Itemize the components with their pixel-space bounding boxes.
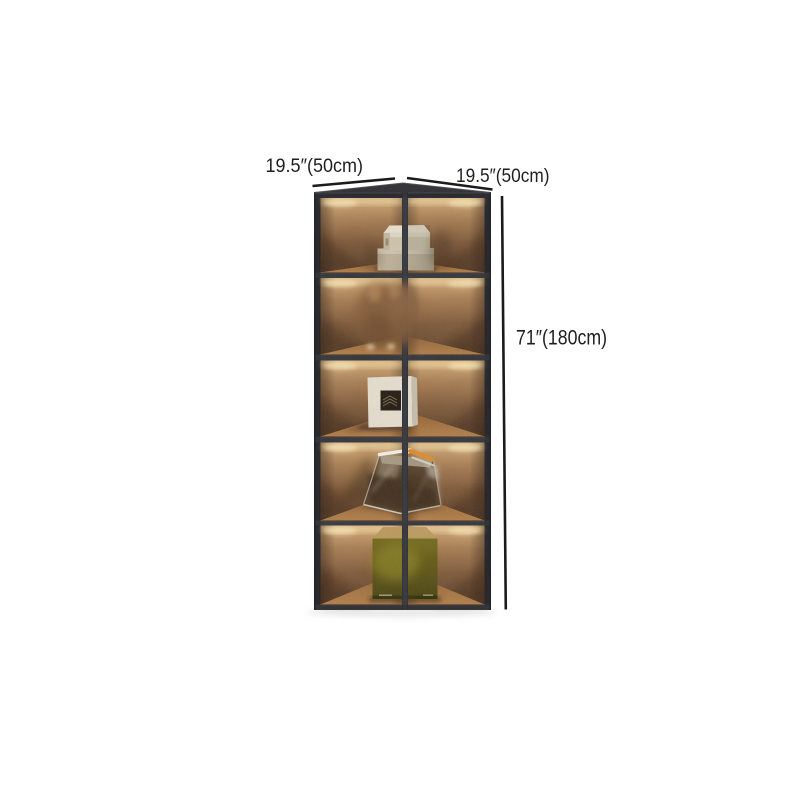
svg-text:19.5″(50cm): 19.5″(50cm) — [266, 155, 364, 177]
svg-text:71″(180cm): 71″(180cm) — [516, 327, 607, 350]
svg-text:19.5″(50cm): 19.5″(50cm) — [456, 165, 550, 187]
